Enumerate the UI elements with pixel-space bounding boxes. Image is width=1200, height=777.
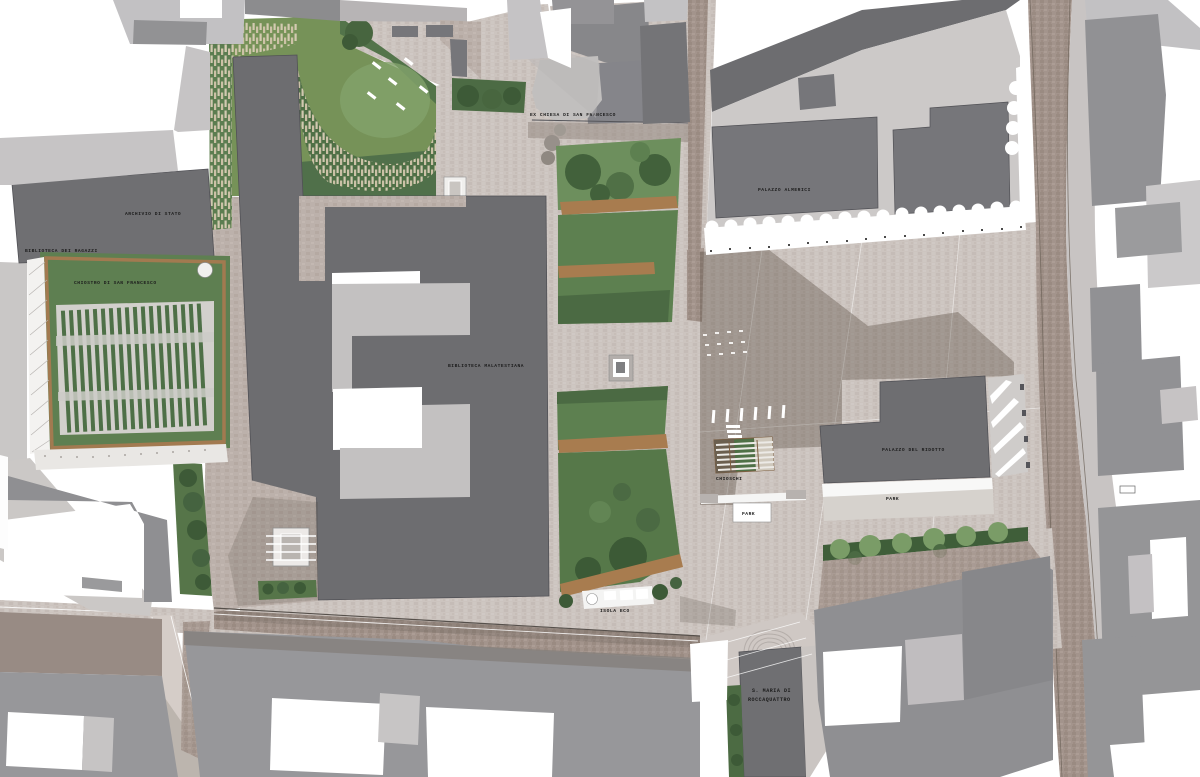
svg-text:S. MARIA DI: S. MARIA DI xyxy=(752,688,791,694)
svg-text:CHIOSTRO DI SAN FRANCESCO: CHIOSTRO DI SAN FRANCESCO xyxy=(74,280,157,286)
svg-text:EX CHIESA DI SAN FRANCESCO: EX CHIESA DI SAN FRANCESCO xyxy=(530,112,616,118)
svg-text:ARCHIVIO DI STATO: ARCHIVIO DI STATO xyxy=(125,211,181,217)
svg-text:CHIOSCHI: CHIOSCHI xyxy=(716,476,742,482)
svg-text:PARK: PARK xyxy=(886,496,899,502)
svg-text:ISOLA ECO: ISOLA ECO xyxy=(600,608,630,614)
svg-text:ROCCAQUATTRO: ROCCAQUATTRO xyxy=(748,697,791,703)
svg-text:PARK: PARK xyxy=(742,511,755,517)
svg-text:PALAZZO ALMERICI: PALAZZO ALMERICI xyxy=(758,187,811,193)
svg-text:BIBLIOTECA MALATESTIANA: BIBLIOTECA MALATESTIANA xyxy=(448,363,524,369)
svg-text:PALAZZO DEL RIDOTTO: PALAZZO DEL RIDOTTO xyxy=(882,447,945,453)
